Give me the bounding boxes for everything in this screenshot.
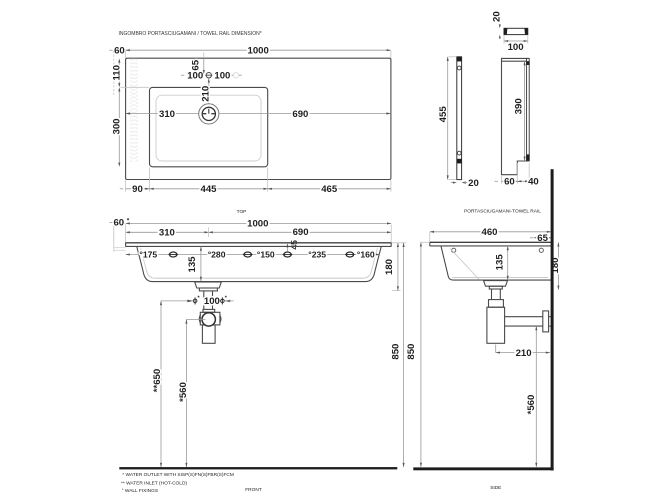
svg-text:100: 100 bbox=[508, 42, 524, 53]
svg-text:850: 850 bbox=[391, 344, 402, 360]
svg-text:210: 210 bbox=[516, 348, 532, 359]
svg-text:135: 135 bbox=[495, 254, 506, 271]
svg-text:90: 90 bbox=[132, 184, 143, 195]
svg-text:310: 310 bbox=[159, 228, 175, 239]
svg-text:180: 180 bbox=[384, 259, 395, 275]
svg-text:310: 310 bbox=[159, 109, 175, 120]
svg-text:°160: °160 bbox=[357, 250, 375, 260]
svg-text:60: 60 bbox=[113, 218, 124, 229]
svg-text:20: 20 bbox=[492, 11, 503, 22]
svg-text:100: 100 bbox=[187, 70, 203, 81]
svg-text:SIDE: SIDE bbox=[490, 485, 501, 491]
svg-text:FRONT: FRONT bbox=[245, 487, 262, 493]
svg-text:390: 390 bbox=[514, 98, 525, 114]
svg-text:460: 460 bbox=[481, 227, 497, 238]
svg-text:465: 465 bbox=[321, 184, 338, 195]
svg-text:850: 850 bbox=[406, 344, 417, 360]
svg-text:100: 100 bbox=[204, 296, 220, 307]
svg-text:60: 60 bbox=[504, 177, 515, 188]
svg-text:°280: °280 bbox=[208, 250, 226, 260]
svg-text:**650: **650 bbox=[152, 369, 163, 392]
svg-text:100: 100 bbox=[214, 70, 230, 81]
svg-text:*560: *560 bbox=[178, 382, 189, 402]
svg-text:°235: °235 bbox=[308, 250, 326, 260]
svg-text:1000: 1000 bbox=[247, 219, 268, 230]
svg-text:690: 690 bbox=[293, 227, 309, 238]
svg-text:°150: °150 bbox=[257, 250, 275, 260]
svg-text:110: 110 bbox=[111, 65, 122, 80]
svg-text:INGOMBRO PORTASCIUGAMANI / TOW: INGOMBRO PORTASCIUGAMANI / TOWEL RAIL DI… bbox=[119, 31, 262, 37]
svg-text:TOP: TOP bbox=[237, 209, 247, 215]
svg-text:40: 40 bbox=[528, 177, 539, 188]
svg-text:210: 210 bbox=[200, 86, 211, 102]
svg-text:455: 455 bbox=[438, 106, 449, 123]
svg-text:°175: °175 bbox=[139, 250, 157, 260]
svg-text:445: 445 bbox=[200, 184, 217, 195]
svg-text:60: 60 bbox=[114, 45, 125, 56]
svg-text:65: 65 bbox=[191, 59, 202, 70]
svg-text:* WATER OUTLET WITH SISP(S)FN: * WATER OUTLET WITH SISP(S)FN(S)FBR(S)FC… bbox=[122, 472, 234, 478]
svg-text:20: 20 bbox=[468, 178, 479, 189]
svg-text:1000: 1000 bbox=[248, 45, 269, 56]
svg-text:135: 135 bbox=[187, 256, 198, 273]
svg-text:*560: *560 bbox=[526, 395, 537, 415]
svg-text:PORTASCIUGAMANI-TOWEL RAIL: PORTASCIUGAMANI-TOWEL RAIL bbox=[464, 209, 541, 215]
svg-text:300: 300 bbox=[111, 118, 122, 134]
svg-text:45: 45 bbox=[289, 240, 299, 250]
svg-text:** WATER INLET (HOT-COLD): ** WATER INLET (HOT-COLD) bbox=[121, 480, 187, 486]
svg-text:690: 690 bbox=[292, 109, 308, 120]
svg-text:° WALL FIXINGS: ° WALL FIXINGS bbox=[122, 488, 158, 494]
